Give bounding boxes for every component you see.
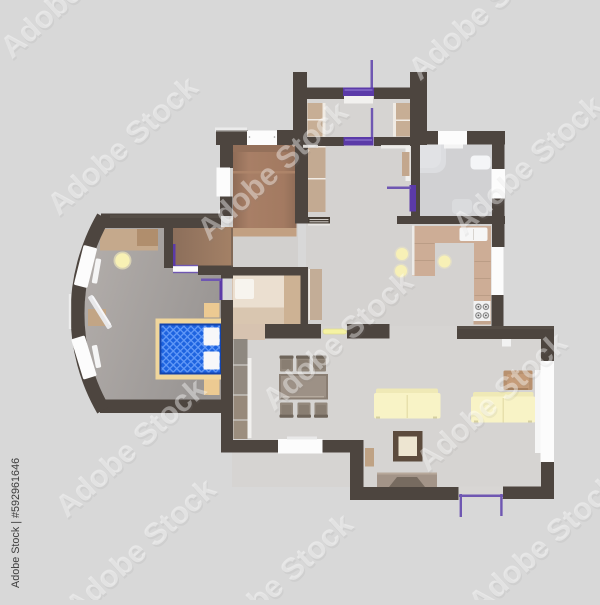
svg-text:Adobe Stock | #592961646: Adobe Stock | #592961646 [10, 458, 22, 588]
